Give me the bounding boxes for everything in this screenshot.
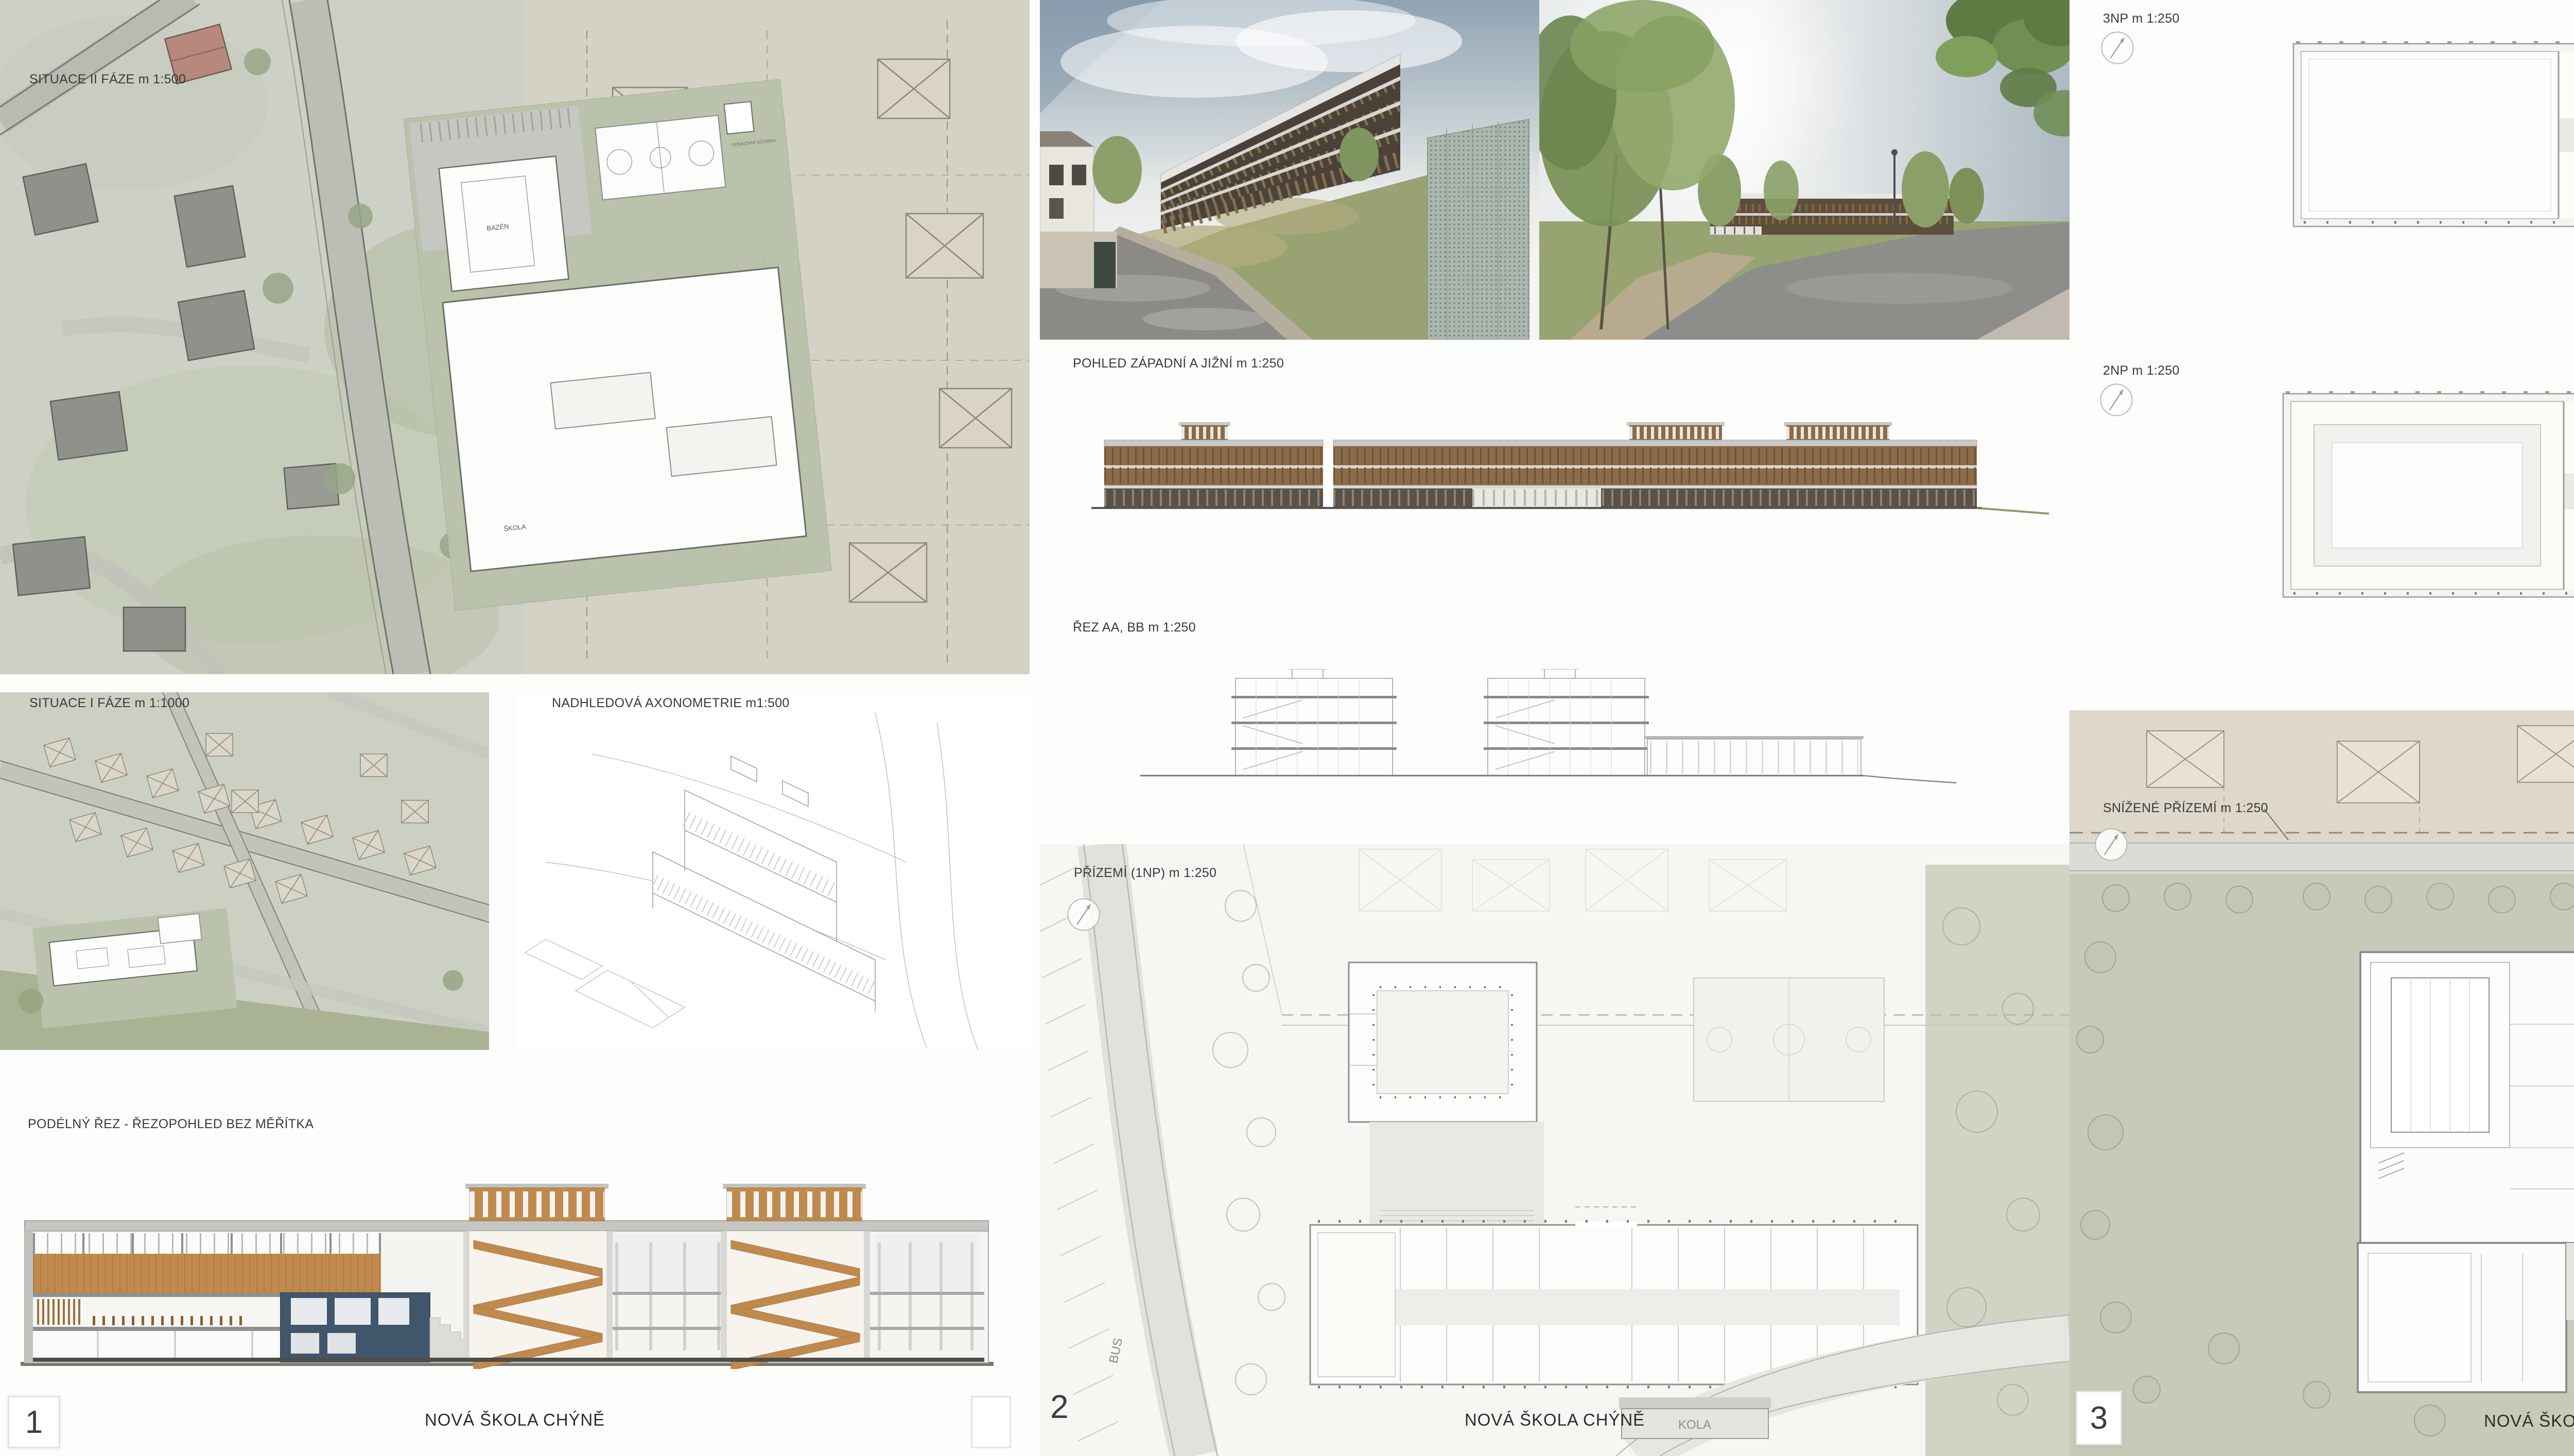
- tree: [1764, 161, 1799, 220]
- label-elevations: POHLED ZÁPADNÍ A JIŽNÍ m 1:250: [1073, 356, 1284, 371]
- school-building-plan: [2358, 952, 2574, 1392]
- label-site-phase1: SITUACE I FÁZE m 1:1000: [29, 696, 189, 711]
- north-arrow-icon: [1066, 897, 1102, 933]
- west-elevation: [1091, 422, 1338, 509]
- stair-tower-2: [721, 1184, 870, 1369]
- section-bb: [1484, 669, 1649, 776]
- floor-plan-3np: [2286, 41, 2574, 232]
- section-aa: [1231, 669, 1397, 776]
- panel2-title: NOVÁ ŠKOLA CHÝNĚ: [1040, 1410, 2069, 1430]
- tree: [1340, 128, 1379, 181]
- pool-building: BAZÉN: [439, 156, 569, 291]
- south-elevation: [1323, 422, 2049, 515]
- school-site: BAZÉN ŠKOLA VENKOVNÍ UČEBNA: [404, 79, 831, 610]
- section-drawings: [1133, 669, 1956, 787]
- elevation-drawings: [1081, 412, 2049, 515]
- terrace: [1369, 1122, 1544, 1225]
- panel1-title: NOVÁ ŠKOLA CHÝNĚ: [0, 1410, 1030, 1430]
- stair-tower-1: [463, 1184, 613, 1369]
- street-north: [2069, 840, 2574, 874]
- competition-board: BAZÉN ŠKOLA VENKOVNÍ UČEBNA: [0, 0, 2574, 1456]
- north-arrow-icon: [2093, 827, 2129, 863]
- school-site-small: [32, 908, 237, 1029]
- panel3-title: NOVÁ ŠKOLA CHÝNĚ: [2069, 1411, 2574, 1431]
- render-street-view: [1040, 0, 1539, 340]
- corridor: [2559, 118, 2574, 152]
- label-sections: ŘEZ AA, BB m 1:250: [1073, 620, 1196, 635]
- north-arrow-icon: [2098, 382, 2134, 418]
- panel-3: VENKOVNÍ UČEBNA 3NP m 1:250 2NP m 1:250 …: [2069, 0, 2574, 1456]
- panel-1: BAZÉN ŠKOLA VENKOVNÍ UČEBNA: [0, 0, 1030, 1456]
- sports-court: [595, 115, 725, 200]
- site-plan-phase2: BAZÉN ŠKOLA VENKOVNÍ UČEBNA: [0, 0, 1030, 674]
- render-approach-view: [1539, 0, 2069, 340]
- label-lowered-ground: SNÍŽENÉ PŘÍZEMÍ m 1:250: [2103, 801, 2268, 816]
- site-plan-phase1: [0, 692, 489, 1050]
- longitudinal-section: [21, 1163, 999, 1369]
- label-site-phase2: SITUACE II FÁZE m 1:500: [29, 72, 186, 87]
- tree: [1949, 168, 1984, 223]
- school-hall: ŠKOLA: [443, 268, 806, 572]
- hall-void: [2301, 51, 2559, 219]
- label-3np: 3NP m 1:250: [2103, 11, 2180, 26]
- mesh-fence: [1428, 119, 1529, 340]
- pool: [2391, 978, 2489, 1132]
- terrace: [2566, 1243, 2574, 1320]
- corridor: [2564, 473, 2574, 510]
- panel-2: BUS: [1040, 0, 2069, 1456]
- label-axonometry: NADHLEDOVÁ AXONOMETRIE m1:500: [552, 696, 790, 711]
- low-wing-section: [1645, 736, 1864, 776]
- ground-floor-plan: BUS: [1040, 844, 2069, 1456]
- panel1-corner-box: [971, 1396, 1011, 1448]
- tree: [1902, 151, 1949, 227]
- north-arrow-icon: [2099, 30, 2135, 66]
- lowered-ground-site-plan: VENKOVNÍ UČEBNA: [2069, 710, 2574, 1456]
- axonometry-drawing: [515, 692, 1030, 1050]
- courtyard-block: [1349, 962, 1537, 1122]
- label-2np: 2NP m 1:250: [2103, 363, 2180, 378]
- faint-court: [1694, 978, 1884, 1101]
- floor-plan-2np: [2275, 386, 2574, 602]
- label-ground-floor: PŘÍZEMÍ (1NP) m 1:250: [1074, 866, 1216, 881]
- label-long-section: PODÉLNÝ ŘEZ - ŘEZOPOHLED BEZ MĚŘÍTKA: [28, 1117, 314, 1132]
- tree: [1092, 136, 1142, 204]
